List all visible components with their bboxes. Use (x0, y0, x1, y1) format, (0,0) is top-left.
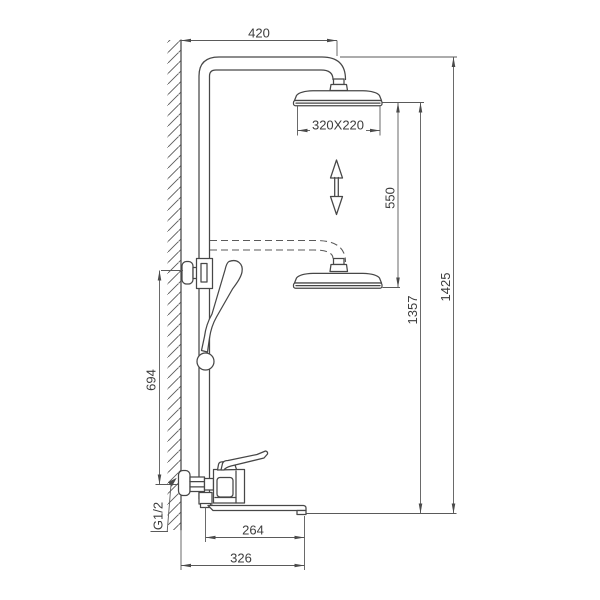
arrowhead (452, 504, 456, 514)
arrowhead (181, 39, 191, 43)
arrowhead (158, 271, 162, 281)
dimension-label-326: 326 (230, 551, 252, 566)
dimension-label-1425: 1425 (438, 273, 453, 302)
shower-head-neck (334, 79, 345, 85)
arrowhead (419, 103, 423, 113)
technical-drawing-canvas: 420 320X220 550 (0, 0, 600, 600)
overhead-shower-head (294, 91, 383, 106)
spout (208, 506, 306, 511)
arrowhead (452, 57, 456, 67)
dimension-label-320x220: 320X220 (312, 118, 364, 133)
dimension-label-550: 550 (383, 187, 398, 209)
arrowhead (295, 536, 305, 540)
arrowhead (298, 129, 308, 133)
holder-knob (197, 353, 214, 370)
dimension-label-694: 694 (144, 369, 159, 391)
arrowhead (181, 564, 191, 568)
dimension-320x220: 320X220 (298, 106, 381, 136)
slider-bracket (182, 259, 213, 289)
dimension-label-420: 420 (248, 26, 270, 41)
wall-flange-upper (182, 262, 193, 285)
arrowhead (419, 504, 423, 514)
spout-foot (297, 511, 306, 515)
arrowhead (370, 129, 380, 133)
arrowhead (327, 39, 337, 43)
outlet-block (199, 493, 212, 505)
dimension-1357: 1357 (405, 103, 422, 514)
dimension-label-1357: 1357 (405, 296, 420, 325)
bath-mixer (179, 451, 307, 515)
up-arrowhead (331, 160, 343, 178)
height-adjust-arrow-icon (331, 160, 343, 215)
dimension-420: 420 (181, 26, 337, 57)
ghost-head-collar (330, 265, 348, 272)
mixer-lever-handle (221, 451, 268, 470)
wall-hatching (168, 40, 182, 530)
ghost-head-dome (295, 273, 382, 283)
shower-system-dimension-drawing: 420 320X220 550 (0, 0, 600, 600)
inlet-hex-nut (190, 477, 205, 492)
wall-section (168, 40, 182, 530)
dimension-264: 264 (206, 507, 305, 542)
ghost-arm-inner-dashed (210, 250, 333, 259)
dimension-label-264: 264 (242, 523, 264, 538)
arrowhead (206, 536, 216, 540)
dimension-550: 550 (383, 103, 425, 288)
shower-head-collar (330, 85, 348, 91)
arrowhead (295, 564, 305, 568)
inlet-connector (205, 479, 214, 491)
wall-flange-lower (179, 471, 191, 496)
down-arrowhead (331, 197, 343, 215)
dimension-label-g12: G1/2 (151, 502, 166, 530)
arrowhead (396, 103, 400, 113)
arrowhead (396, 278, 400, 288)
shower-head-dome (295, 91, 382, 101)
ghost-head-neck (334, 259, 345, 265)
arrowhead (158, 475, 162, 485)
